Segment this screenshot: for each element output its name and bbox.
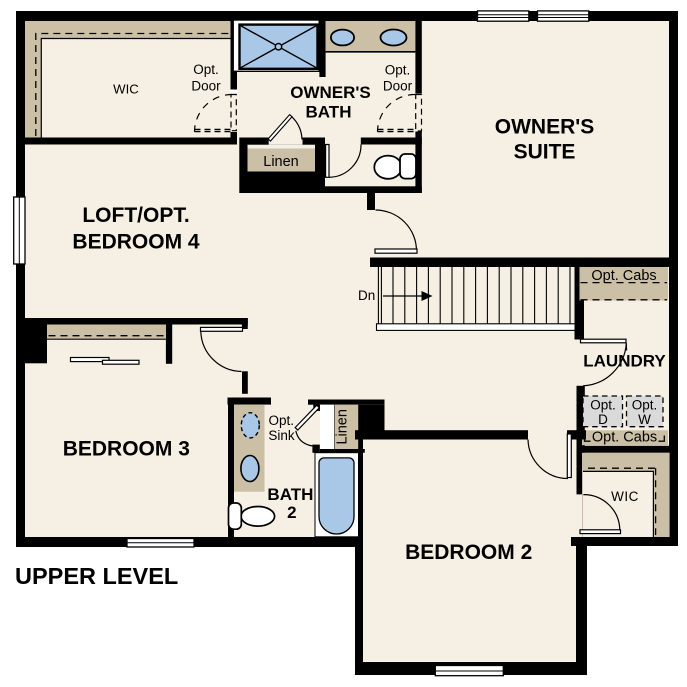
svg-text:Linen: Linen [335, 409, 351, 444]
svg-text:Opt. Cabs: Opt. Cabs [592, 429, 657, 445]
svg-text:W: W [638, 412, 651, 427]
svg-text:Opt.: Opt. [193, 62, 219, 77]
svg-text:WIC: WIC [611, 489, 639, 504]
svg-text:LOFT/OPT.: LOFT/OPT. [82, 204, 189, 227]
svg-text:Opt.: Opt. [632, 398, 658, 413]
svg-text:Door: Door [191, 79, 221, 94]
svg-text:Opt.: Opt. [268, 413, 294, 428]
svg-text:Opt.: Opt. [590, 398, 616, 413]
svg-text:Opt.: Opt. [385, 62, 411, 77]
svg-text:OWNER'S: OWNER'S [290, 83, 371, 102]
svg-text:UPPER LEVEL: UPPER LEVEL [15, 563, 178, 589]
svg-text:BEDROOM 4: BEDROOM 4 [72, 230, 200, 253]
svg-text:Door: Door [383, 79, 413, 94]
svg-text:BEDROOM 2: BEDROOM 2 [405, 541, 532, 564]
svg-text:OWNER'S: OWNER'S [495, 116, 595, 139]
svg-text:BEDROOM 3: BEDROOM 3 [63, 437, 190, 460]
svg-text:Sink: Sink [268, 428, 295, 443]
svg-text:Linen: Linen [263, 154, 298, 170]
svg-text:D: D [598, 412, 608, 427]
svg-text:WIC: WIC [113, 82, 139, 97]
svg-text:Opt. Cabs: Opt. Cabs [591, 268, 656, 284]
svg-text:2: 2 [287, 503, 296, 522]
svg-text:LAUNDRY: LAUNDRY [583, 352, 666, 371]
svg-text:BATH: BATH [267, 485, 313, 504]
svg-text:Dn: Dn [358, 288, 375, 303]
svg-text:SUITE: SUITE [514, 141, 576, 164]
svg-text:BATH: BATH [306, 102, 352, 121]
